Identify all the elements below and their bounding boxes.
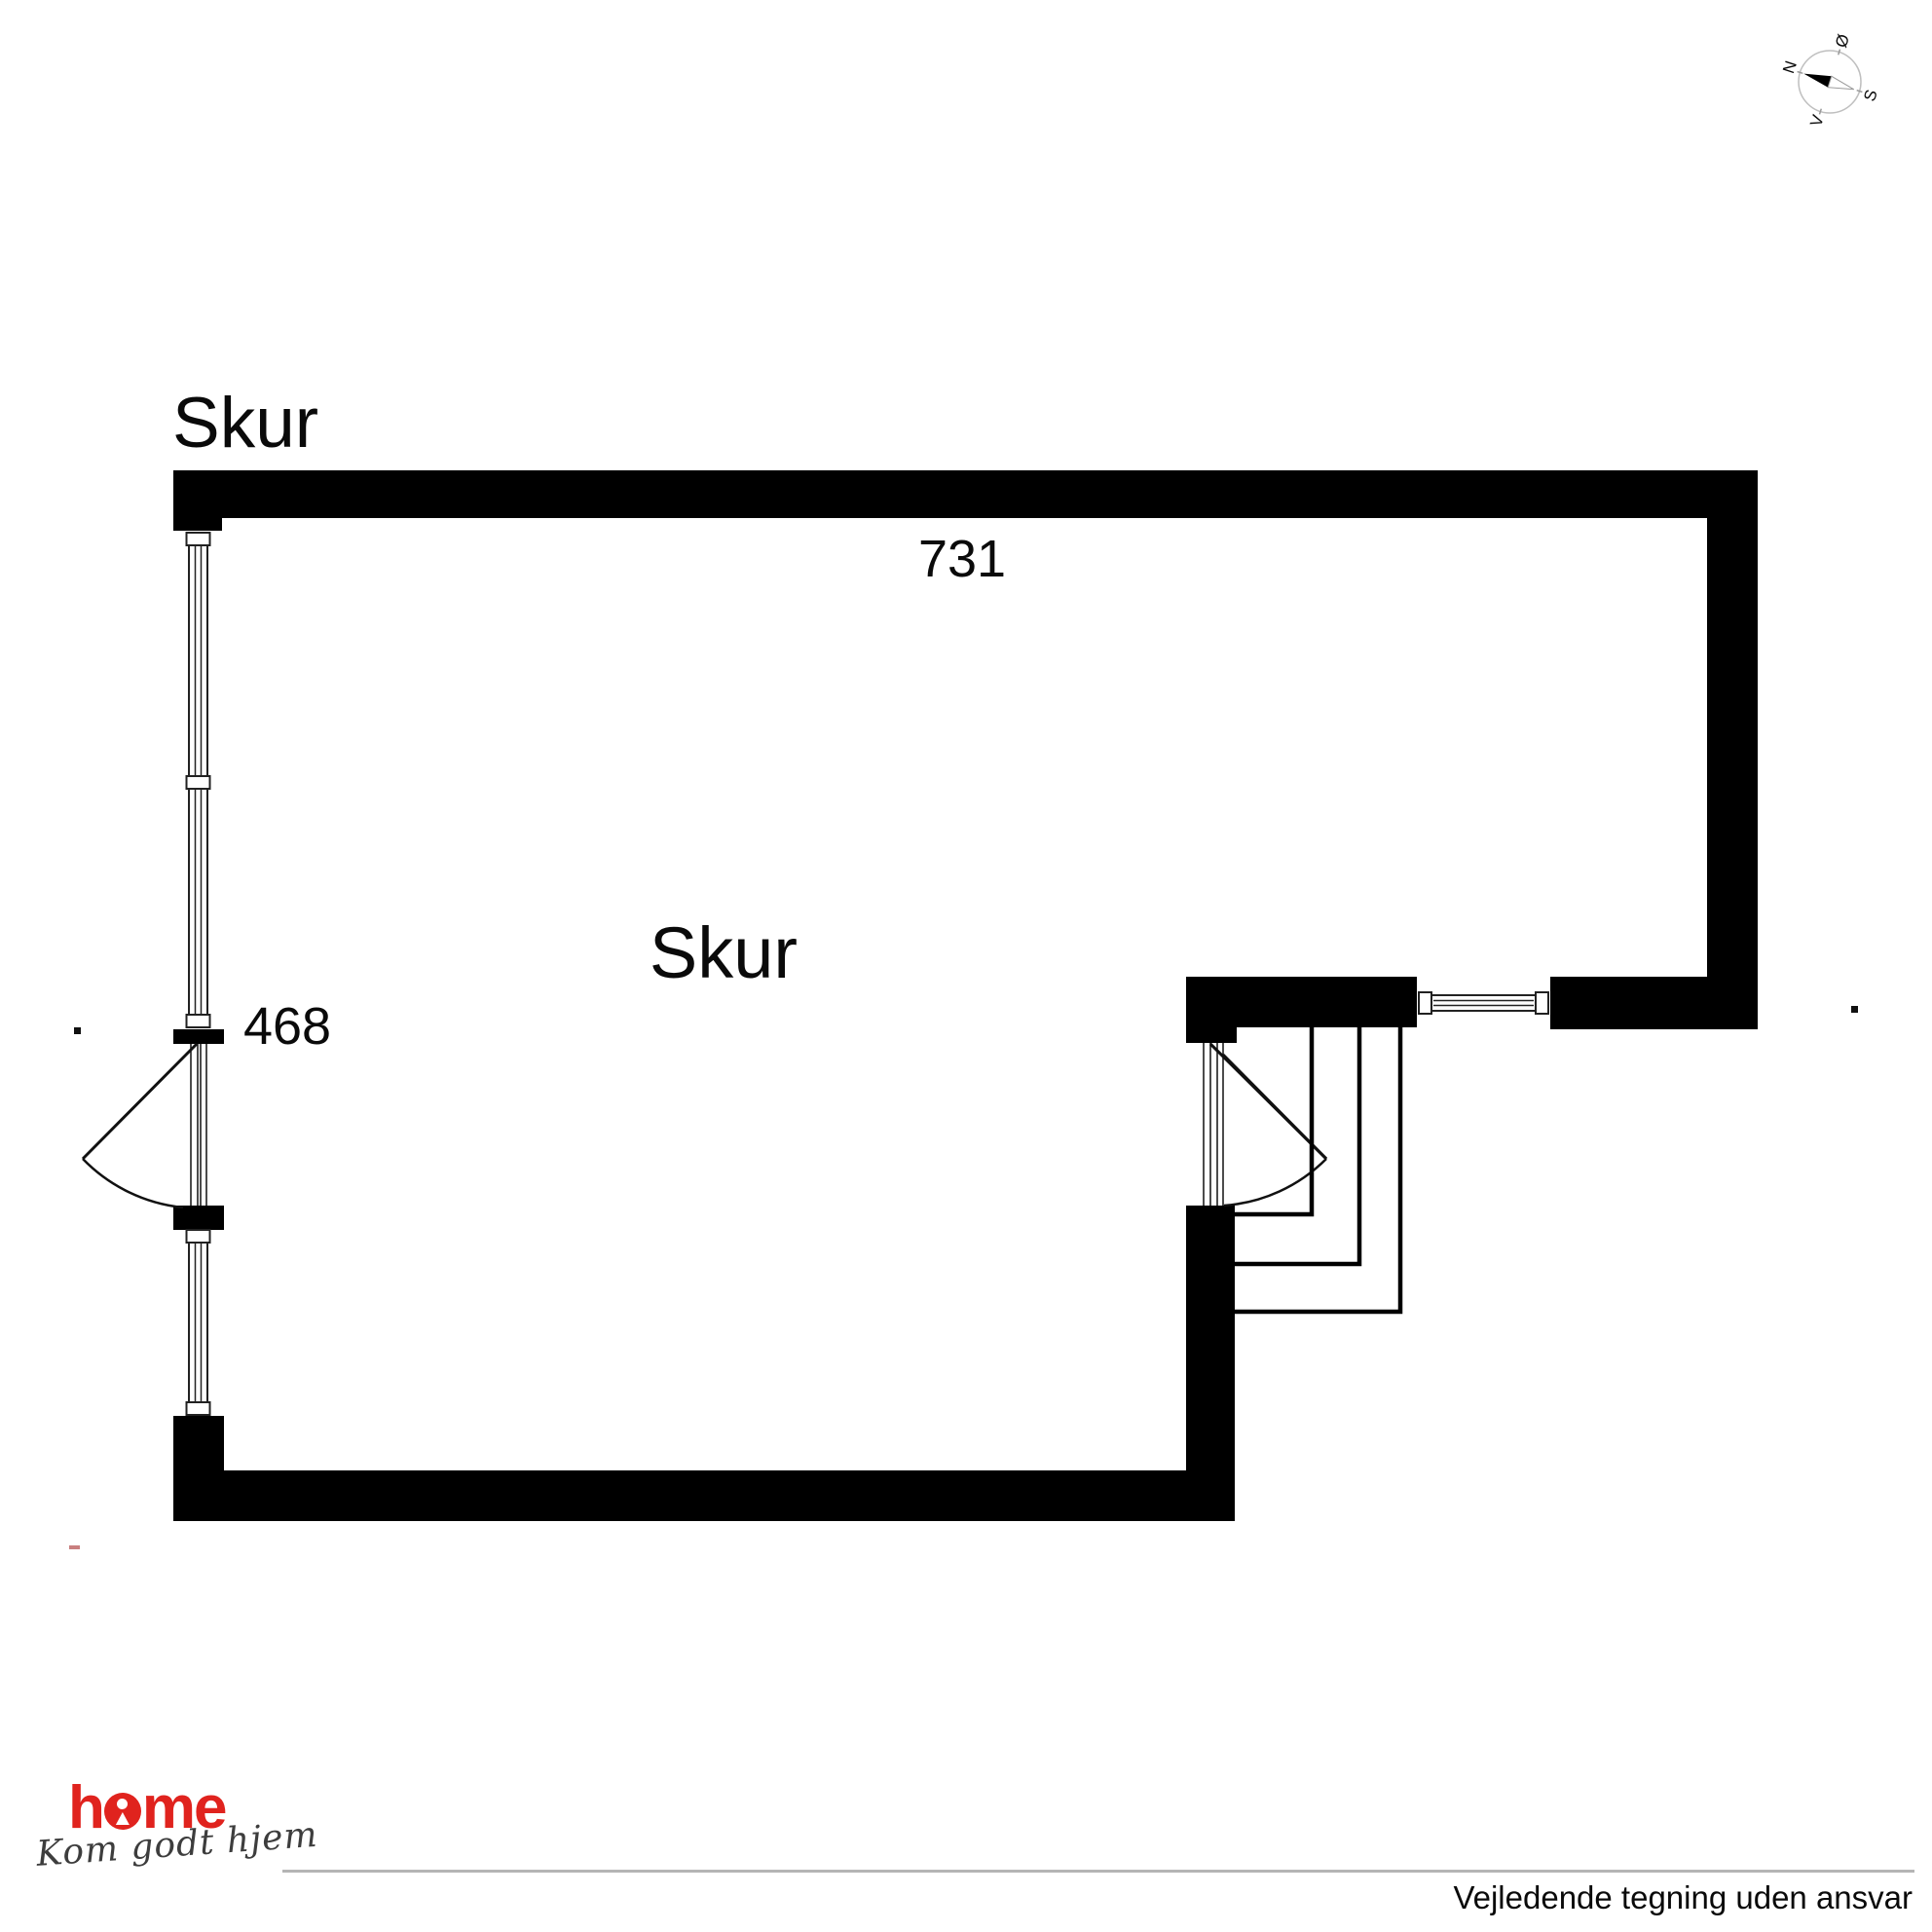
disclaimer-text: Vejledende tegning uden ansvar bbox=[1453, 1879, 1913, 1916]
plan-title: Skur bbox=[172, 384, 318, 463]
door-interior bbox=[1204, 1043, 1326, 1206]
reference-dot-left bbox=[74, 1027, 81, 1034]
floorplan-page: N Ø S V Skur Skur 731 468 hme Kom godt h… bbox=[0, 0, 1932, 1932]
window-left-upper bbox=[187, 533, 210, 1027]
compass-v: V bbox=[1806, 112, 1828, 129]
step bbox=[1235, 1027, 1359, 1264]
door-leaf bbox=[83, 1044, 197, 1159]
window-sill bbox=[187, 1230, 210, 1243]
door-swing-arc bbox=[83, 1159, 183, 1207]
room-label: Skur bbox=[650, 912, 798, 993]
wall-corner-top-left bbox=[173, 470, 222, 531]
compass: N Ø S V bbox=[1779, 32, 1881, 130]
window-sill bbox=[187, 1402, 210, 1415]
wall-interior-door-jamb-top bbox=[1186, 977, 1237, 1043]
window-left-lower bbox=[187, 1230, 210, 1415]
wall-corner-bottom-left bbox=[173, 1416, 224, 1521]
wall-bottom bbox=[173, 1470, 1235, 1521]
dimension-width: 731 bbox=[918, 530, 1006, 588]
wall-left-door-jamb-top bbox=[173, 1029, 224, 1044]
window-sill bbox=[187, 1015, 210, 1027]
window-sill bbox=[187, 533, 210, 545]
window-sill bbox=[1419, 992, 1431, 1014]
floorplan-drawing: N Ø S V Skur Skur 731 468 bbox=[0, 0, 1932, 1932]
entrance-steps bbox=[1235, 1027, 1400, 1312]
footer-divider bbox=[282, 1870, 1914, 1873]
wall-top bbox=[173, 470, 1758, 518]
wall-right bbox=[1707, 470, 1758, 1029]
door-left bbox=[83, 1044, 206, 1207]
window-sill bbox=[187, 776, 210, 789]
compass-n: N bbox=[1779, 58, 1801, 76]
step bbox=[1235, 1027, 1400, 1312]
keyhole-icon bbox=[104, 1793, 141, 1830]
window-right bbox=[1419, 992, 1548, 1014]
step bbox=[1235, 1027, 1312, 1214]
compass-needle-north bbox=[1803, 74, 1832, 88]
window-sill bbox=[1536, 992, 1548, 1014]
compass-e: Ø bbox=[1832, 32, 1853, 50]
compass-s: S bbox=[1860, 88, 1881, 104]
reference-dot-right bbox=[1851, 1006, 1858, 1013]
dimension-height: 468 bbox=[243, 997, 331, 1056]
wall-left-door-jamb-bottom bbox=[173, 1206, 224, 1230]
reference-mark-pink bbox=[69, 1545, 80, 1549]
compass-needle-south bbox=[1828, 76, 1854, 90]
wall-corner-right-block bbox=[1550, 977, 1758, 1029]
